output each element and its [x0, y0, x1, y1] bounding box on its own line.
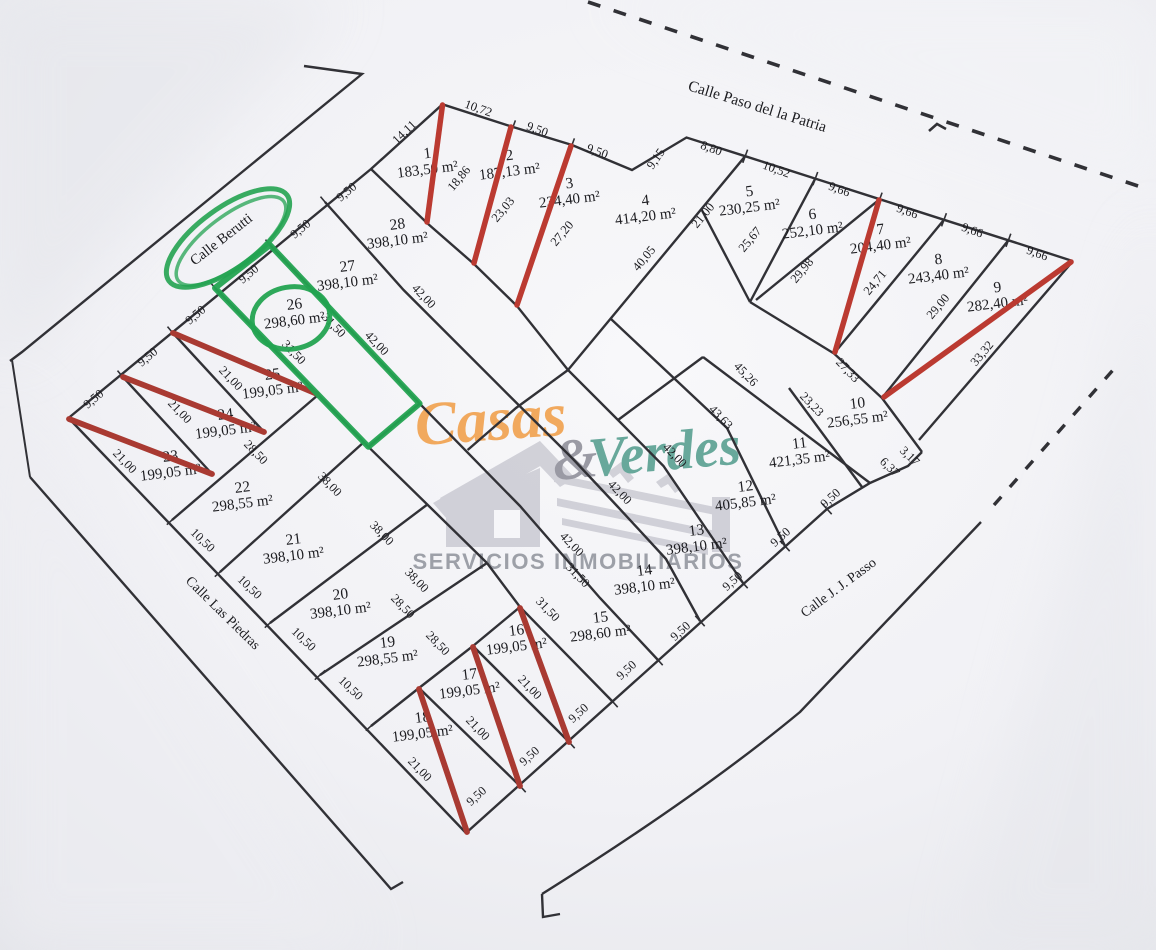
svg-text:28: 28	[389, 215, 407, 234]
svg-text:17: 17	[461, 665, 479, 684]
svg-text:14: 14	[636, 561, 654, 580]
svg-text:22: 22	[234, 478, 251, 497]
svg-text:21: 21	[285, 530, 302, 549]
svg-text:12: 12	[737, 477, 754, 496]
svg-text:20: 20	[332, 585, 350, 604]
svg-text:15: 15	[592, 608, 610, 627]
svg-text:27: 27	[339, 257, 357, 276]
svg-text:13: 13	[688, 521, 706, 540]
svg-text:26: 26	[286, 295, 304, 314]
svg-text:11: 11	[791, 434, 808, 453]
svg-text:10: 10	[849, 394, 867, 413]
svg-text:19: 19	[379, 633, 397, 652]
